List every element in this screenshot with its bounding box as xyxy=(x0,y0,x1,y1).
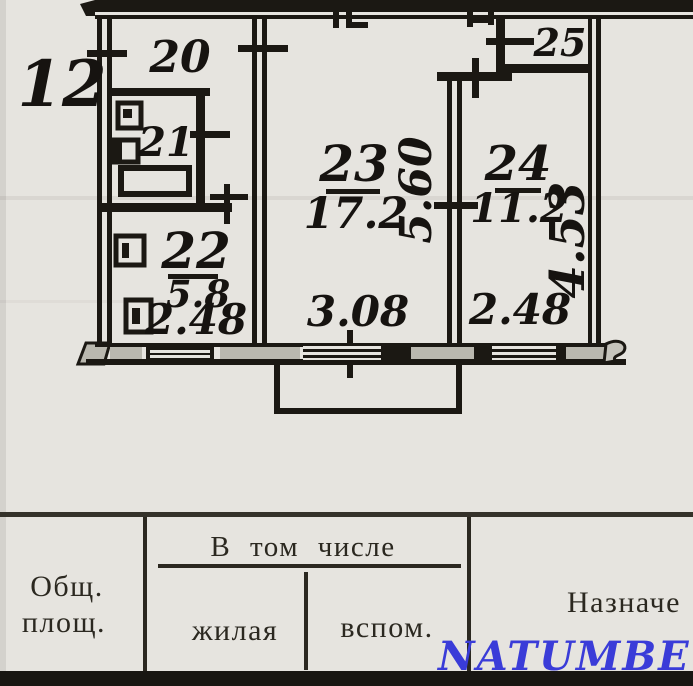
bathroom-top-wall xyxy=(109,88,210,96)
column-living: жилая xyxy=(191,614,278,647)
bathroom-right-wall xyxy=(196,88,205,210)
wall-pier xyxy=(381,346,411,360)
table-vertical-line xyxy=(304,572,308,670)
dimension-depth-middle: 5.60 xyxy=(391,136,442,244)
door-mark xyxy=(472,58,479,98)
column-total-area-line1: Общ. xyxy=(30,570,104,603)
right-wall xyxy=(596,15,601,345)
kitchen-sink-icon xyxy=(122,243,129,258)
window-glazing-line xyxy=(303,349,381,352)
wall-23-24 xyxy=(457,76,462,346)
window-glazing-line xyxy=(150,350,210,353)
wall-20-23 xyxy=(262,15,267,345)
toilet-icon xyxy=(123,109,132,118)
scanned-floor-plan-photo: 12 20 21 22 5.8 23 17.2 24 11.2 25 2.48 … xyxy=(0,0,693,686)
window-glazing-line xyxy=(303,355,381,358)
dimension-depth-right: 4.53 xyxy=(540,182,596,299)
table-top-rule xyxy=(0,512,693,517)
door-mark xyxy=(346,0,352,28)
stove-icon xyxy=(132,308,140,324)
door-mark xyxy=(190,131,230,138)
window-sill xyxy=(566,347,608,359)
dimension-bottom-left: 2.48 xyxy=(144,295,247,344)
door-mark xyxy=(238,45,288,52)
window-sill xyxy=(110,347,142,359)
sink-icon xyxy=(113,140,122,162)
room-21-number: 21 xyxy=(137,119,194,166)
table-vertical-line xyxy=(143,517,147,672)
window-sill xyxy=(220,347,300,359)
table-horizontal-line xyxy=(158,564,461,568)
room-20-number: 20 xyxy=(148,32,211,83)
wall-pier xyxy=(474,346,492,360)
top-wall-inner-line xyxy=(95,15,693,19)
building-label: 12 xyxy=(17,47,106,122)
photo-edge-shadow xyxy=(0,0,6,686)
door-mark xyxy=(352,22,368,28)
bathroom-bottom-wall xyxy=(100,203,232,212)
room-25-number: 25 xyxy=(533,20,587,65)
column-total-area-line2: площ. xyxy=(22,606,106,639)
window-glazing-line xyxy=(492,355,556,358)
dimension-bottom-middle: 3.08 xyxy=(307,287,409,336)
header-including: В том числе xyxy=(210,531,395,563)
door-mark xyxy=(210,194,248,200)
door-mark xyxy=(486,38,534,45)
left-wall xyxy=(107,15,112,347)
door-mark xyxy=(224,184,230,224)
door-mark xyxy=(333,0,339,28)
room25-bottom-wall xyxy=(496,64,592,73)
window-glazing-line xyxy=(150,355,210,358)
window-band xyxy=(78,341,626,365)
watermark-text: NATUMBE. KZ xyxy=(436,633,693,680)
wall-23-24 xyxy=(447,76,452,346)
wall-20-23 xyxy=(252,15,257,345)
column-purpose: Назначе xyxy=(567,586,681,619)
room-23-number: 23 xyxy=(318,134,389,193)
top-exterior-wall xyxy=(95,0,693,12)
entrance-door-mark xyxy=(470,17,494,23)
column-auxiliary: вспом. xyxy=(340,611,433,644)
floor-plan-drawing: 12 20 21 22 5.8 23 17.2 24 11.2 25 2.48 … xyxy=(0,0,693,686)
wall-pier xyxy=(556,346,566,360)
window-sill xyxy=(411,347,474,359)
window-glazing-line xyxy=(492,349,556,352)
